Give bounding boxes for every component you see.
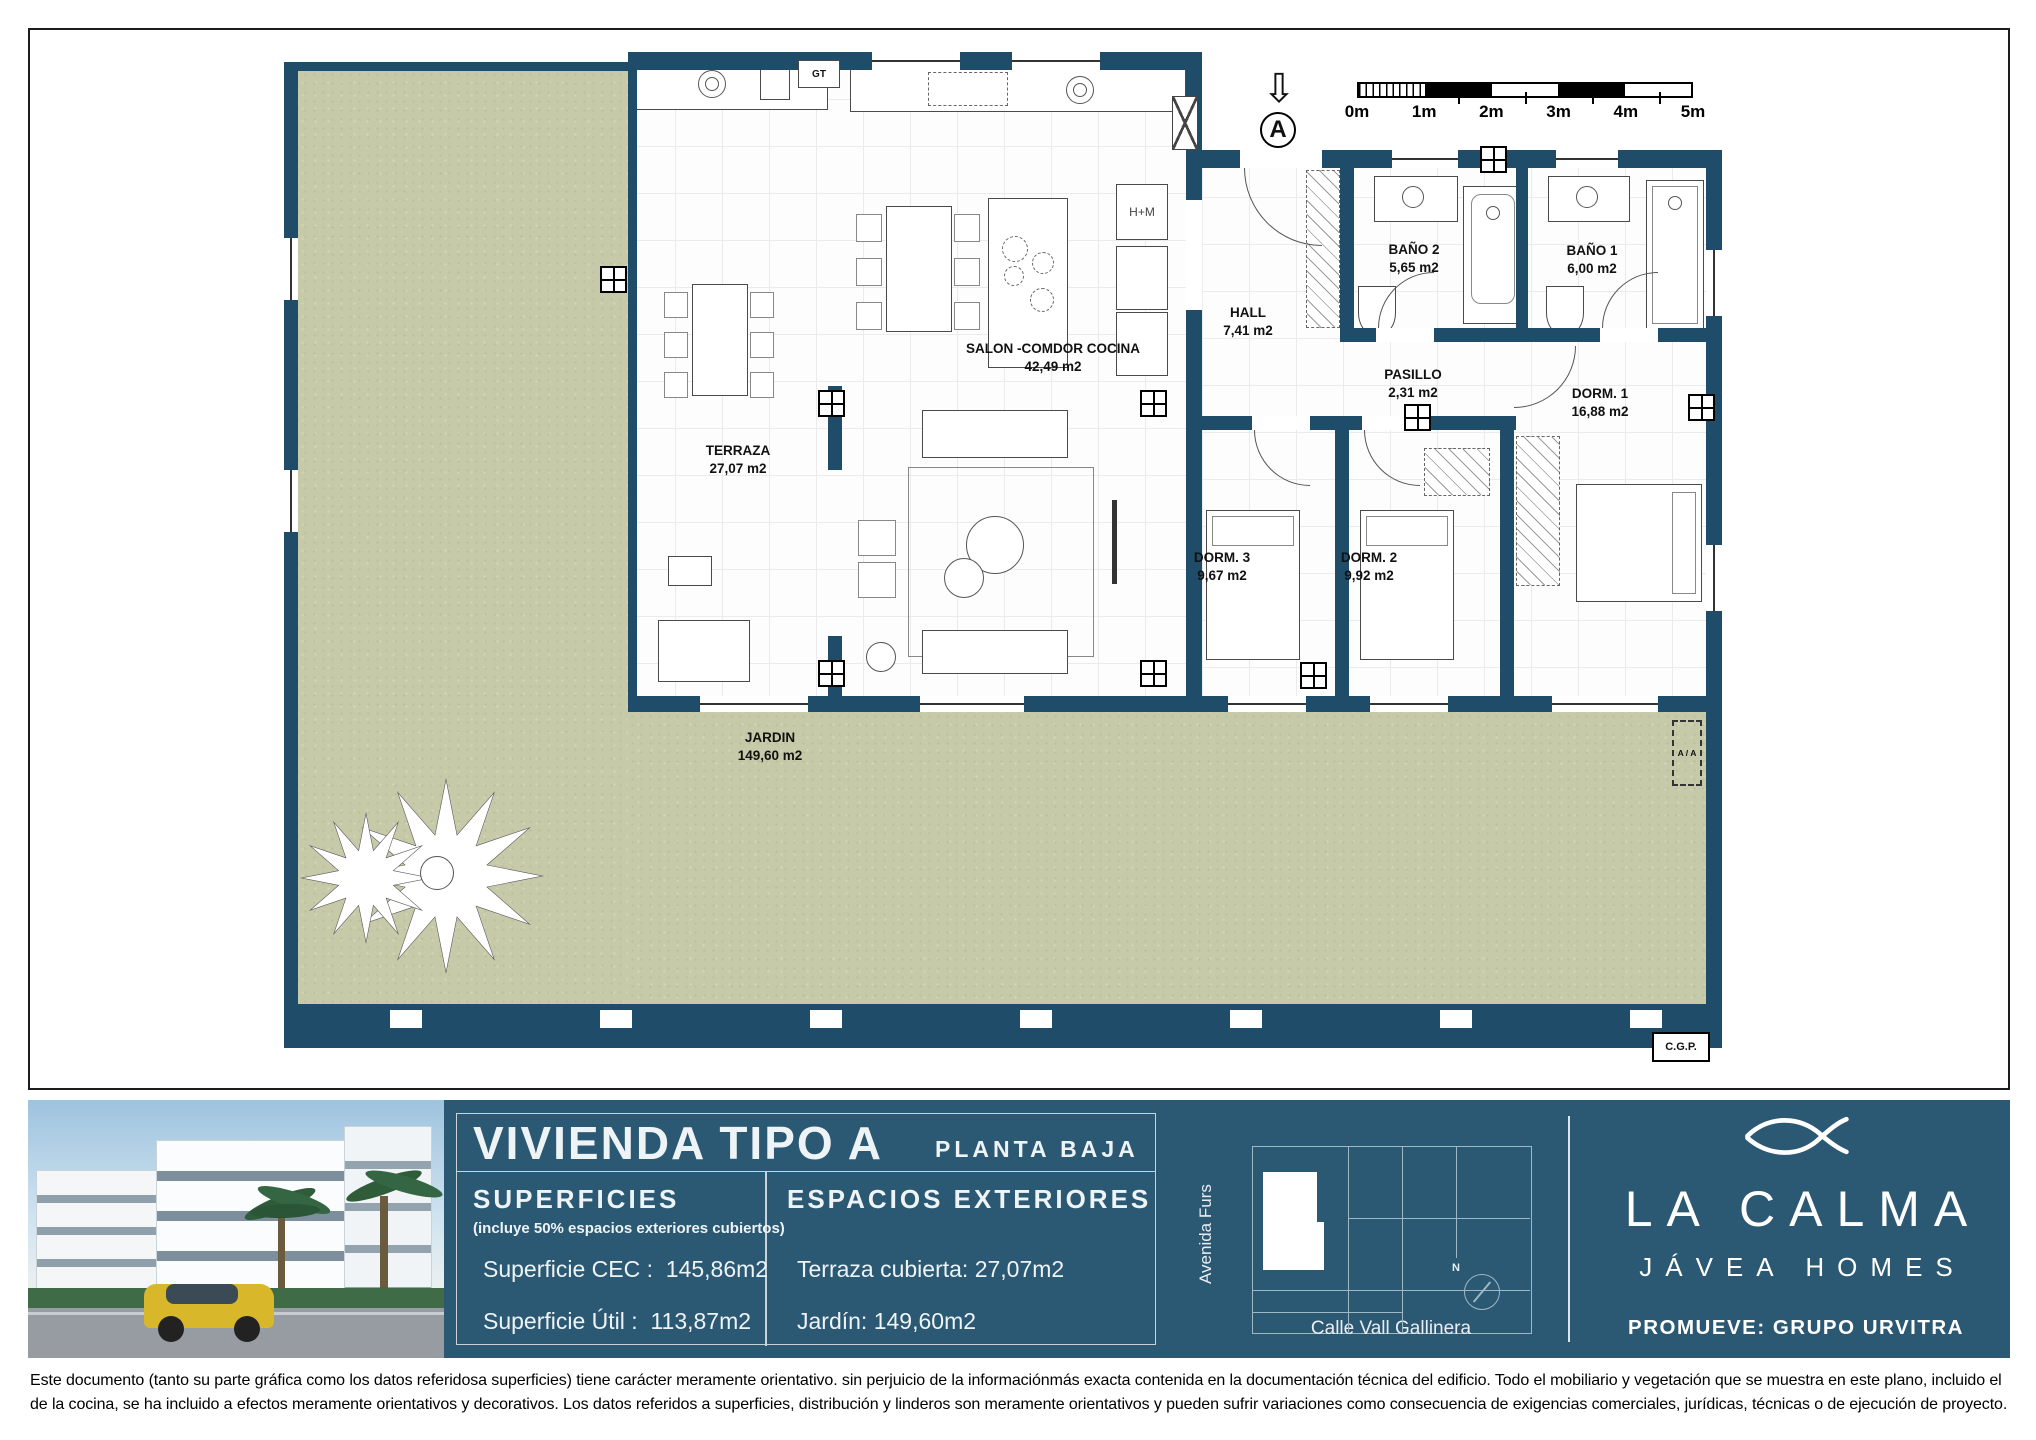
- room-label-bano1: BAÑO 16,00 m2: [1566, 242, 1617, 278]
- data-panel: VIVIENDA TIPO A PLANTA BAJA SUPERFICIES …: [456, 1113, 1156, 1345]
- chair: [750, 372, 774, 398]
- wall-marker: [1300, 662, 1327, 689]
- window: [284, 470, 298, 532]
- scale-label: 0m: [1345, 102, 1370, 122]
- wall: [1196, 416, 1516, 430]
- chair: [750, 292, 774, 318]
- wall-marker: [818, 390, 845, 417]
- highlighted-unit: [1310, 1222, 1324, 1270]
- hm-appliance: H+M: [1116, 184, 1168, 240]
- pouf: [866, 642, 896, 672]
- hob-burner: [1004, 266, 1024, 286]
- room-label-dorm3: DORM. 39,67 m2: [1194, 549, 1250, 585]
- window: [920, 696, 1024, 712]
- disclaimer-line-2: de la cocina, se ha incluido a efectos m…: [30, 1396, 2007, 1414]
- scale-label: 4m: [1614, 102, 1639, 122]
- fence-gap: [1230, 1010, 1262, 1028]
- highlighted-unit: [1263, 1172, 1317, 1270]
- chair: [954, 214, 980, 242]
- room-label-hall: HALL7,41 m2: [1223, 304, 1273, 340]
- brand-name: LA CALMA: [1580, 1180, 2012, 1238]
- door-opening: [1252, 416, 1310, 430]
- chair: [954, 258, 980, 286]
- tv-unit: [1112, 500, 1117, 584]
- palm-trunk-icon: [420, 856, 454, 890]
- dining-table: [886, 206, 952, 332]
- chair: [750, 332, 774, 358]
- chair: [664, 332, 688, 358]
- window: [284, 238, 298, 300]
- drain: [1486, 206, 1500, 220]
- room-label-dorm2: DORM. 29,92 m2: [1341, 549, 1397, 585]
- basin: [1402, 186, 1424, 208]
- fence-gap: [1020, 1010, 1052, 1028]
- jardin-row: Jardín: 149,60m2: [797, 1308, 976, 1335]
- terraza-row: Terraza cubierta: 27,07m2: [797, 1256, 1064, 1283]
- room-label-pasillo: PASILLO2,31 m2: [1384, 366, 1442, 402]
- outdoor-hob: [760, 68, 790, 100]
- window: [1370, 696, 1448, 712]
- gt-box: GT: [798, 60, 840, 88]
- hob-burner: [1002, 236, 1028, 262]
- door-opening: [1600, 328, 1658, 342]
- coffee-table: [944, 558, 984, 598]
- wall: [284, 62, 636, 71]
- outdoor-sink: [705, 77, 719, 91]
- cgp-box: C.G.P.: [1652, 1032, 1710, 1062]
- wall: [1186, 52, 1202, 712]
- window: [1706, 250, 1722, 316]
- sofa: [922, 410, 1068, 458]
- room-label-salon: SALON -COMDOR COCINA42,49 m2: [966, 340, 1140, 376]
- basin: [1576, 186, 1598, 208]
- brand-block: LA CALMA JÁVEA HOMES PROMUEVE: GRUPO URV…: [1580, 1100, 2012, 1358]
- info-band: VIVIENDA TIPO A PLANTA BAJA SUPERFICIES …: [28, 1100, 2010, 1358]
- wall-marker: [1404, 404, 1431, 431]
- side-table: [858, 562, 896, 598]
- wall: [284, 62, 298, 1048]
- door-opening: [1376, 328, 1434, 342]
- side-table: [858, 520, 896, 556]
- scale-bar: 0m 1m 2m 3m 4m 5m: [1357, 82, 1693, 126]
- chair: [856, 214, 882, 242]
- window: [1228, 696, 1306, 712]
- chair: [664, 292, 688, 318]
- wall: [1340, 150, 1354, 342]
- window: [1556, 150, 1618, 168]
- scale-label: 5m: [1681, 102, 1706, 122]
- window: [700, 696, 808, 712]
- superficies-note: (incluye 50% espacios exteriores cubiert…: [473, 1220, 785, 1237]
- wall-marker: [1140, 660, 1167, 687]
- room-label-terraza: TERRAZA27,07 m2: [706, 442, 771, 478]
- disclaimer-line-1: Este documento (tanto su parte gráfica c…: [30, 1372, 2002, 1390]
- pillow: [1212, 516, 1294, 546]
- drain: [1668, 196, 1682, 210]
- section-marker: A: [1260, 112, 1296, 148]
- chair: [856, 302, 882, 330]
- sheet-subtitle: PLANTA BAJA: [935, 1136, 1139, 1163]
- pillow: [1672, 492, 1696, 594]
- wardrobe-dorm2: [1424, 448, 1490, 496]
- exteriores-heading: ESPACIOS EXTERIORES: [787, 1184, 1151, 1215]
- room-label-bano2: BAÑO 25,65 m2: [1388, 241, 1439, 277]
- wall-marker: [600, 266, 627, 293]
- window: [872, 52, 960, 70]
- room-label-dorm1: DORM. 116,88 m2: [1571, 385, 1628, 421]
- fish-logo-icon: [1740, 1106, 1852, 1166]
- window: [1392, 150, 1458, 168]
- hob-burner: [1030, 288, 1054, 312]
- dishwasher: [928, 72, 1008, 106]
- floorplan-sheet: GT H+M: [0, 0, 2036, 1440]
- scale-label: 1m: [1412, 102, 1437, 122]
- chair: [664, 372, 688, 398]
- wall-marker: [1480, 146, 1507, 173]
- brand-promoter: PROMUEVE: GRUPO URVITRA: [1580, 1316, 2012, 1340]
- window: [1012, 52, 1100, 70]
- building-photo: [28, 1100, 444, 1358]
- superficie-cec-row: Superficie CEC : 145,86m2: [483, 1256, 768, 1283]
- chair: [856, 258, 882, 286]
- window: [1706, 545, 1722, 611]
- room-label-jardin: JARDIN149,60 m2: [738, 729, 803, 765]
- kitchen-counter: [850, 66, 1186, 112]
- site-map: Avenida Furs N Calle Vall Gallinera: [1178, 1100, 1590, 1358]
- superficie-util-row: Superficie Útil : 113,87m2: [483, 1308, 751, 1335]
- wall-marker: [1140, 390, 1167, 417]
- pillow: [1366, 516, 1448, 546]
- fence-gap: [1630, 1010, 1662, 1028]
- fence-gap: [600, 1010, 632, 1028]
- wall: [1500, 416, 1514, 712]
- scale-label: 3m: [1546, 102, 1571, 122]
- street-label-bottom: Calle Vall Gallinera: [1252, 1318, 1530, 1340]
- terrace-dining-table: [692, 284, 748, 396]
- wall: [284, 1004, 1722, 1048]
- sheet-title: VIVIENDA TIPO A: [473, 1116, 883, 1170]
- hob-burner: [1032, 252, 1054, 274]
- wall: [1516, 150, 1528, 342]
- door-opening: [1186, 200, 1202, 310]
- door-opening: [1240, 150, 1322, 168]
- oven-column: [1116, 246, 1168, 310]
- terrace-side-table: [668, 556, 712, 586]
- chair: [954, 302, 980, 330]
- wall-marker: [1688, 394, 1715, 421]
- kitchen-sink: [1073, 83, 1087, 97]
- compass-icon: [1464, 1274, 1500, 1310]
- terrace-sofa: [658, 620, 750, 682]
- divider: [1568, 1116, 1570, 1342]
- fence-gap: [1440, 1010, 1472, 1028]
- section-arrow-icon: ⇩: [1256, 66, 1302, 112]
- fence-gap: [390, 1010, 422, 1028]
- wall-marker: [818, 660, 845, 687]
- wall: [628, 52, 637, 712]
- brand-tagline: JÁVEA HOMES: [1580, 1252, 2012, 1283]
- wardrobe-dorm1: [1516, 436, 1560, 586]
- sofa: [922, 630, 1068, 674]
- street-label-left: Avenida Furs: [1196, 1146, 1222, 1322]
- scale-label: 2m: [1479, 102, 1504, 122]
- superficies-heading: SUPERFICIES: [473, 1184, 679, 1215]
- window: [1552, 696, 1658, 712]
- ac-unit-box: A / A: [1672, 720, 1702, 786]
- compass-n: N: [1452, 1262, 1460, 1274]
- fence-gap: [810, 1010, 842, 1028]
- entry-door-panel: [1172, 96, 1198, 150]
